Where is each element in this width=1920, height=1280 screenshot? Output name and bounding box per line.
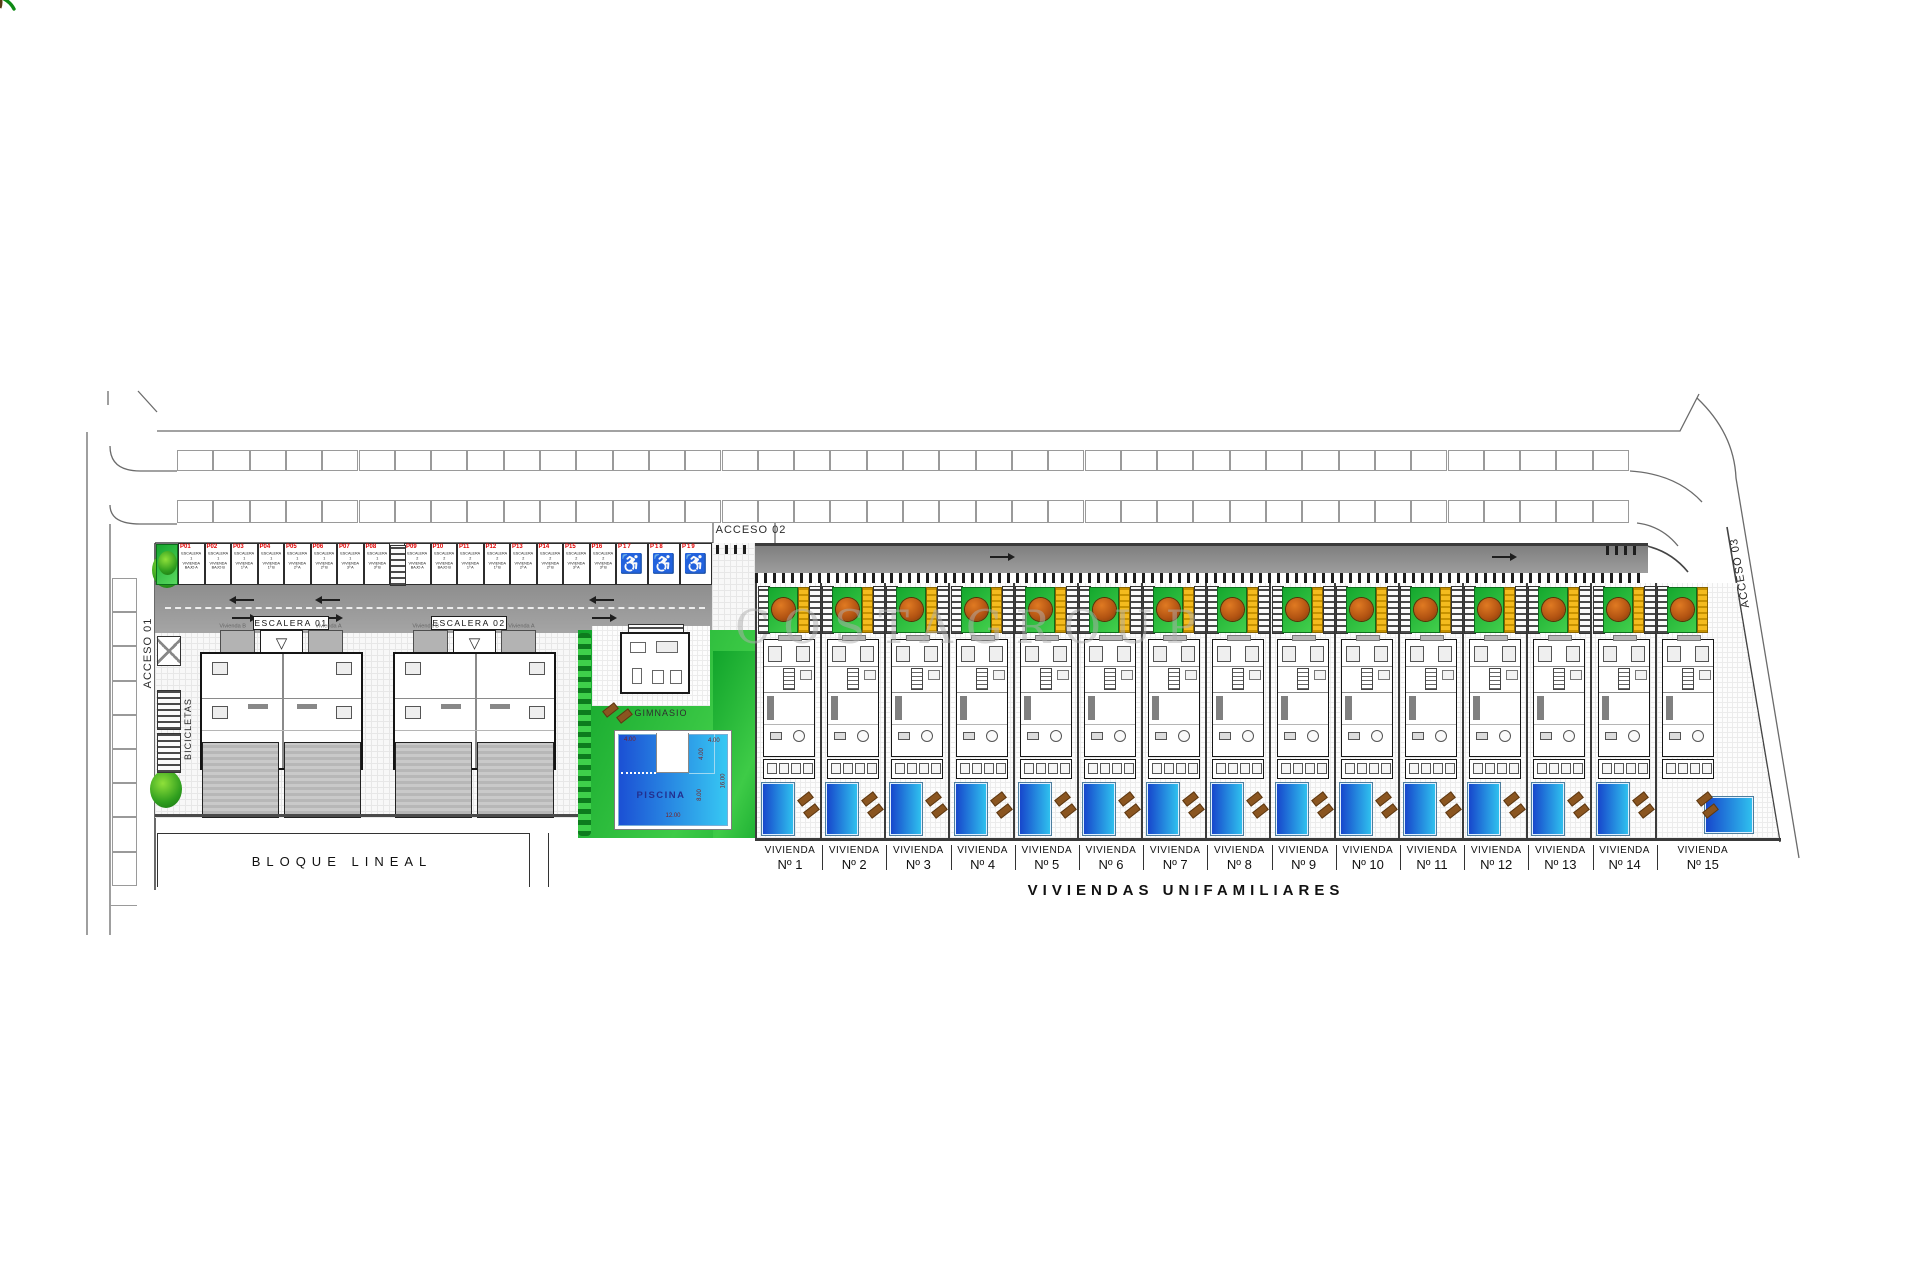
house-label-number: Nº 7 bbox=[1143, 857, 1207, 872]
sun-lounger bbox=[1253, 803, 1270, 819]
bathroom bbox=[1378, 670, 1390, 680]
bathroom bbox=[864, 670, 876, 680]
kitchen-counter bbox=[831, 696, 838, 720]
bed bbox=[212, 706, 228, 719]
parking-space: P02 ESCALERA 1VIVIENDABAJO B ♿ bbox=[205, 543, 232, 585]
stair-icon: ▽ bbox=[276, 635, 288, 652]
parking-space: P17 ♿ bbox=[616, 543, 648, 585]
house-floorplan bbox=[956, 639, 1008, 757]
pergola-strip bbox=[1440, 587, 1451, 633]
dining-table bbox=[1050, 730, 1062, 742]
bathroom bbox=[928, 670, 940, 680]
staircase bbox=[1489, 668, 1501, 690]
houses-south-edge bbox=[755, 838, 1781, 841]
bed bbox=[1374, 646, 1388, 662]
dining-table bbox=[1242, 730, 1254, 742]
sofa bbox=[898, 732, 910, 740]
acceso-01-label: ACCESO 01 bbox=[142, 609, 154, 697]
bloque-lineal-outline2 bbox=[548, 833, 549, 887]
staircase bbox=[1618, 668, 1630, 690]
escalera-02-label: ESCALERA 02 bbox=[431, 616, 507, 630]
traffic-arrow-left bbox=[318, 599, 340, 601]
wheelchair-icon: ♿ bbox=[649, 552, 679, 576]
front-garden bbox=[1667, 587, 1697, 633]
private-pool bbox=[955, 783, 987, 835]
round-tree bbox=[150, 770, 182, 808]
unit-b-label: Vivienda B bbox=[219, 624, 246, 630]
sun-lounger bbox=[1188, 803, 1205, 819]
house-label: VIVIENDA Nº 15 bbox=[1671, 845, 1735, 872]
traffic-arrow-left bbox=[232, 599, 254, 601]
house-label-number: Nº 8 bbox=[1207, 857, 1271, 872]
house-label-number: Nº 2 bbox=[822, 857, 886, 872]
label-divider bbox=[1015, 845, 1016, 870]
front-tree bbox=[1478, 598, 1501, 621]
staircase bbox=[1040, 668, 1052, 690]
crosswalk-acceso3 bbox=[1606, 546, 1636, 555]
house-plot bbox=[1464, 583, 1527, 838]
staircase bbox=[1553, 668, 1565, 690]
private-pool bbox=[1083, 783, 1115, 835]
kitchen-counter bbox=[1473, 696, 1480, 720]
parking-space-id: P11 bbox=[459, 544, 469, 551]
staircase bbox=[1104, 668, 1116, 690]
bed bbox=[336, 662, 352, 675]
palm-tree-icon bbox=[0, 0, 23, 9]
wheelchair-icon: ♿ bbox=[617, 552, 647, 576]
road-centerline bbox=[165, 607, 705, 609]
parking-space: P08 ESCALERA 1VIVIENDA3º B ♿ bbox=[364, 543, 391, 585]
private-pool bbox=[1404, 783, 1436, 835]
parking-space-id: P10 bbox=[433, 544, 444, 551]
bed bbox=[1245, 646, 1259, 662]
front-tree bbox=[1286, 598, 1309, 621]
house-label-word: VIVIENDA bbox=[1528, 845, 1592, 856]
sun-lounger bbox=[1060, 803, 1077, 819]
bike-rack bbox=[157, 733, 181, 773]
house-nameplate bbox=[1227, 635, 1251, 641]
driveway-hatch bbox=[1323, 586, 1335, 634]
bed bbox=[1538, 646, 1552, 662]
house-plot bbox=[1207, 583, 1270, 838]
sun-lounger bbox=[1638, 803, 1655, 819]
house-nameplate bbox=[1420, 635, 1444, 641]
parking-space-assignment: ESCALERA 1VIVIENDA1º B bbox=[259, 552, 282, 571]
parking-space-assignment: ESCALERA 2VIVIENDA2º B bbox=[538, 552, 561, 571]
house-label-number: Nº 10 bbox=[1336, 857, 1400, 872]
staircase bbox=[911, 668, 923, 690]
parking-space: P18 ♿ bbox=[648, 543, 680, 585]
sofa bbox=[963, 732, 975, 740]
house-terrace bbox=[1084, 759, 1136, 779]
parking-space-assignment: ESCALERA 1VIVIENDA2º B bbox=[312, 552, 335, 571]
parking-corner-green bbox=[156, 544, 178, 585]
private-pool bbox=[1340, 783, 1372, 835]
house-terrace bbox=[1662, 759, 1714, 779]
traffic-arrow-right bbox=[990, 556, 1012, 558]
front-garden bbox=[1346, 587, 1376, 633]
kitchen-counter bbox=[895, 696, 902, 720]
house-plot bbox=[1400, 583, 1463, 838]
bed bbox=[1631, 646, 1645, 662]
label-divider bbox=[1272, 845, 1273, 870]
dining-table bbox=[921, 730, 933, 742]
parking-space-id: P12 bbox=[486, 544, 497, 551]
kitchen-counter bbox=[1409, 696, 1416, 720]
parking-space-assignment: ESCALERA 1VIVIENDABAJO A bbox=[180, 552, 203, 571]
parking-space: P15 ESCALERA 2VIVIENDA3º A ♿ bbox=[563, 543, 590, 585]
private-pool bbox=[1019, 783, 1051, 835]
kitchen-counter bbox=[1345, 696, 1352, 720]
dining-table bbox=[986, 730, 998, 742]
staircase bbox=[783, 668, 795, 690]
stair-icon: ▽ bbox=[469, 635, 481, 652]
house-label: VIVIENDA Nº 6 bbox=[1079, 845, 1143, 872]
sofa bbox=[1412, 732, 1424, 740]
front-tree bbox=[1414, 598, 1437, 621]
label-divider bbox=[886, 845, 887, 870]
sun-lounger bbox=[1317, 803, 1334, 819]
unit-a-label: Vivienda A bbox=[315, 624, 341, 630]
house-terrace bbox=[1148, 759, 1200, 779]
house-label-number: Nº 4 bbox=[951, 857, 1015, 872]
parking-space: P04 ESCALERA 1VIVIENDA1º B ♿ bbox=[258, 543, 285, 585]
driveway-hatch bbox=[1579, 586, 1591, 634]
traffic-arrow-right bbox=[232, 617, 254, 619]
sun-lounger bbox=[990, 791, 1007, 807]
sofa bbox=[770, 732, 782, 740]
house-floorplan bbox=[1341, 639, 1393, 757]
label-divider bbox=[951, 845, 952, 870]
dining-table bbox=[793, 730, 805, 742]
parking-space-id: P09 bbox=[406, 544, 417, 551]
private-pool bbox=[1468, 783, 1500, 835]
house-nameplate bbox=[1356, 635, 1380, 641]
parking-space: P09 ESCALERA 2VIVIENDABAJO A ♿ bbox=[404, 543, 431, 585]
front-garden bbox=[1474, 587, 1504, 633]
bathroom bbox=[1570, 670, 1582, 680]
parking-space-assignment: ESCALERA 1VIVIENDABAJO B bbox=[206, 552, 229, 571]
parking-space: P11 ESCALERA 2VIVIENDA1º A ♿ bbox=[457, 543, 484, 585]
driveway-hatch bbox=[1515, 586, 1527, 634]
house-label-word: VIVIENDA bbox=[822, 845, 886, 856]
house-plot bbox=[1528, 583, 1591, 838]
sofa bbox=[1476, 732, 1488, 740]
kitchen-counter bbox=[441, 704, 461, 709]
label-divider bbox=[1528, 845, 1529, 870]
parking-space-assignment: ESCALERA 2VIVIENDA3º A bbox=[565, 552, 588, 571]
kitchen-counter bbox=[490, 704, 510, 709]
bathroom bbox=[1314, 670, 1326, 680]
house-label: VIVIENDA Nº 8 bbox=[1207, 845, 1271, 872]
apartment-building: Vivienda B Vivienda A ▽ bbox=[393, 630, 556, 818]
sun-lounger bbox=[996, 803, 1013, 819]
house-label-number: Nº 13 bbox=[1528, 857, 1592, 872]
parking-space: P05 ESCALERA 1VIVIENDA2º A ♿ bbox=[284, 543, 311, 585]
house-floorplan bbox=[1598, 639, 1650, 757]
kitchen-counter bbox=[1281, 696, 1288, 720]
bed bbox=[1667, 646, 1681, 662]
house-label-word: VIVIENDA bbox=[951, 845, 1015, 856]
parking-space-assignment: ESCALERA 2VIVIENDA1º B bbox=[485, 552, 508, 571]
front-tree bbox=[1350, 598, 1373, 621]
bloque-lineal-label: BLOQUE LINEAL bbox=[192, 854, 492, 869]
house-terrace bbox=[956, 759, 1008, 779]
staircase bbox=[1682, 668, 1694, 690]
parking-space-assignment: ESCALERA 1VIVIENDA1º A bbox=[233, 552, 256, 571]
house-label: VIVIENDA Nº 4 bbox=[951, 845, 1015, 872]
apartment-building: Vivienda B Vivienda A ▽ bbox=[200, 630, 363, 818]
parking-space: P14 ESCALERA 2VIVIENDA2º B ♿ bbox=[537, 543, 564, 585]
house-label: VIVIENDA Nº 7 bbox=[1143, 845, 1207, 872]
house-floorplan bbox=[1662, 639, 1714, 757]
bike-rack bbox=[157, 690, 181, 730]
sun-lounger bbox=[932, 803, 949, 819]
pergola-strip bbox=[1247, 587, 1258, 633]
house-floorplan bbox=[891, 639, 943, 757]
bathroom bbox=[1185, 670, 1197, 680]
bed bbox=[405, 706, 421, 719]
kitchen-counter bbox=[1088, 696, 1095, 720]
bathroom bbox=[993, 670, 1005, 680]
acceso-02-label: ACCESO 02 bbox=[705, 524, 797, 536]
parking-space-assignment: ESCALERA 1VIVIENDA2º A bbox=[286, 552, 309, 571]
bed bbox=[1695, 646, 1709, 662]
private-pool bbox=[1147, 783, 1179, 835]
private-pool bbox=[1211, 783, 1243, 835]
front-garden bbox=[1603, 587, 1633, 633]
parking-stair-strip bbox=[390, 545, 406, 586]
crosswalk-acceso2 bbox=[716, 545, 750, 554]
house-nameplate bbox=[1677, 635, 1701, 641]
label-divider bbox=[1143, 845, 1144, 870]
pool-dim-bottom: 12.00 bbox=[618, 813, 728, 819]
house-floorplan bbox=[1277, 639, 1329, 757]
pool-label: PISCINA bbox=[618, 790, 704, 801]
house-terrace bbox=[1020, 759, 1072, 779]
pergola-strip bbox=[1568, 587, 1579, 633]
sofa bbox=[1669, 732, 1681, 740]
house-terrace bbox=[1212, 759, 1264, 779]
parking-space-id: P06 bbox=[313, 544, 324, 551]
house-label: VIVIENDA Nº 9 bbox=[1272, 845, 1336, 872]
traffic-arrow-right bbox=[592, 617, 614, 619]
street-stall-extra bbox=[110, 905, 137, 906]
driveway-hatch bbox=[1451, 586, 1463, 634]
parking-space: P01 ESCALERA 1VIVIENDABAJO A ♿ bbox=[178, 543, 205, 585]
sun-lounger bbox=[1445, 803, 1462, 819]
house-label-number: Nº 5 bbox=[1015, 857, 1079, 872]
house-label-word: VIVIENDA bbox=[1336, 845, 1400, 856]
staircase bbox=[1361, 668, 1373, 690]
house-terrace bbox=[1533, 759, 1585, 779]
driveway-hatch bbox=[1258, 586, 1270, 634]
driveway-hatch bbox=[1644, 586, 1656, 634]
kitchen-counter bbox=[960, 696, 967, 720]
house-label-number: Nº 12 bbox=[1464, 857, 1528, 872]
pergola-strip bbox=[1633, 587, 1644, 633]
bathroom bbox=[1506, 670, 1518, 680]
house-label-word: VIVIENDA bbox=[1671, 845, 1735, 856]
label-divider bbox=[1657, 845, 1658, 870]
bed bbox=[1217, 646, 1231, 662]
staircase bbox=[1297, 668, 1309, 690]
bed bbox=[1310, 646, 1324, 662]
pool-lane-dots bbox=[621, 772, 656, 774]
site-plan: GIMNASIO 4.00 4.00 4.00 16.00 8.00 12.00… bbox=[0, 0, 1920, 1280]
front-tree bbox=[1607, 598, 1630, 621]
dining-table bbox=[857, 730, 869, 742]
house-label-word: VIVIENDA bbox=[1079, 845, 1143, 856]
parking-space: P12 ESCALERA 2VIVIENDA1º B ♿ bbox=[484, 543, 511, 585]
parking-space-assignment: ESCALERA 2VIVIENDA3º B bbox=[591, 552, 614, 571]
house-terrace bbox=[763, 759, 815, 779]
kitchen-counter bbox=[1024, 696, 1031, 720]
private-pool bbox=[1705, 797, 1753, 833]
house-label-number: Nº 1 bbox=[758, 857, 822, 872]
bed bbox=[529, 662, 545, 675]
kitchen-counter bbox=[297, 704, 317, 709]
house-floorplan bbox=[827, 639, 879, 757]
house-label-word: VIVIENDA bbox=[1143, 845, 1207, 856]
dining-table bbox=[1307, 730, 1319, 742]
parking-space-id: P03 bbox=[233, 544, 244, 551]
apartment-terrace bbox=[284, 742, 361, 818]
apartment-terrace bbox=[395, 742, 472, 818]
pergola-strip bbox=[1504, 587, 1515, 633]
kitchen-counter bbox=[1602, 696, 1609, 720]
unit-b-label: Vivienda B bbox=[412, 624, 439, 630]
house-terrace bbox=[1405, 759, 1457, 779]
bicicletas-label: BICICLETAS bbox=[183, 689, 193, 769]
parking-space-id: P19 bbox=[682, 544, 696, 551]
private-pool bbox=[762, 783, 794, 835]
section-title: VIVIENDAS UNIFAMILIARES bbox=[1006, 882, 1366, 899]
parking-space-id: P17 bbox=[618, 544, 632, 551]
house-label-word: VIVIENDA bbox=[1015, 845, 1079, 856]
house-label-number: Nº 15 bbox=[1671, 857, 1735, 872]
house-terrace bbox=[1341, 759, 1393, 779]
dining-table bbox=[1178, 730, 1190, 742]
house-floorplan bbox=[1212, 639, 1264, 757]
parking-space-id: P15 bbox=[565, 544, 576, 551]
pool-dim-right-upper: 4.00 bbox=[699, 748, 705, 760]
kitchen-counter bbox=[1537, 696, 1544, 720]
house-label-number: Nº 3 bbox=[886, 857, 950, 872]
bed bbox=[1474, 646, 1488, 662]
pool-dim-right-side: 16.00 bbox=[721, 773, 727, 788]
sofa bbox=[1155, 732, 1167, 740]
dining-table bbox=[1435, 730, 1447, 742]
house-label: VIVIENDA Nº 14 bbox=[1593, 845, 1657, 872]
house-label: VIVIENDA Nº 12 bbox=[1464, 845, 1528, 872]
parking-space-id: P01 bbox=[180, 544, 191, 551]
parking-space: P03 ESCALERA 1VIVIENDA1º A ♿ bbox=[231, 543, 258, 585]
house-floorplan bbox=[1084, 639, 1136, 757]
dining-table bbox=[1499, 730, 1511, 742]
staircase bbox=[1425, 668, 1437, 690]
driveway-hatch bbox=[1387, 586, 1399, 634]
staircase bbox=[1168, 668, 1180, 690]
parking-space: P06 ESCALERA 1VIVIENDA2º B ♿ bbox=[311, 543, 338, 585]
bed bbox=[1410, 646, 1424, 662]
parking-space-assignment: ESCALERA 2VIVIENDA2º A bbox=[512, 552, 535, 571]
sofa bbox=[1540, 732, 1552, 740]
parking-space-id: P18 bbox=[650, 544, 664, 551]
house-label: VIVIENDA Nº 10 bbox=[1336, 845, 1400, 872]
sofa bbox=[1284, 732, 1296, 740]
watermark: COSTAGROUP bbox=[735, 600, 1210, 654]
label-divider bbox=[1400, 845, 1401, 870]
parking-space-assignment: ESCALERA 2VIVIENDABAJO A bbox=[406, 552, 429, 571]
parking-space-assignment: ESCALERA 2VIVIENDABAJO B bbox=[432, 552, 455, 571]
bed bbox=[212, 662, 228, 675]
house-plot bbox=[1336, 583, 1399, 838]
front-tree bbox=[1671, 598, 1694, 621]
bathroom bbox=[1442, 670, 1454, 680]
sofa bbox=[1605, 732, 1617, 740]
dining-table bbox=[1692, 730, 1704, 742]
entry-lobby-box bbox=[157, 636, 181, 666]
pergola-strip bbox=[1376, 587, 1387, 633]
house-floorplan bbox=[1469, 639, 1521, 757]
sun-lounger bbox=[803, 803, 820, 819]
front-tree bbox=[1221, 598, 1244, 621]
parking-space-assignment: ESCALERA 1VIVIENDA3º A bbox=[339, 552, 362, 571]
front-garden bbox=[1282, 587, 1312, 633]
private-pool bbox=[1532, 783, 1564, 835]
front-garden bbox=[1410, 587, 1440, 633]
house-floorplan bbox=[1533, 639, 1585, 757]
label-divider bbox=[1593, 845, 1594, 870]
house-terrace bbox=[1277, 759, 1329, 779]
bed bbox=[1346, 646, 1360, 662]
apartment-terrace bbox=[202, 742, 279, 818]
traffic-arrow-left bbox=[592, 599, 614, 601]
house-terrace bbox=[1469, 759, 1521, 779]
staircase bbox=[976, 668, 988, 690]
label-divider bbox=[1336, 845, 1337, 870]
parking-space-id: P16 bbox=[592, 544, 603, 551]
house-nameplate bbox=[1613, 635, 1637, 641]
front-tree bbox=[1542, 598, 1565, 621]
house-label-number: Nº 9 bbox=[1272, 857, 1336, 872]
house-terrace bbox=[827, 759, 879, 779]
bed bbox=[1282, 646, 1296, 662]
house-label-word: VIVIENDA bbox=[886, 845, 950, 856]
label-divider bbox=[1464, 845, 1465, 870]
house-terrace bbox=[891, 759, 943, 779]
parking-space: P07 ESCALERA 1VIVIENDA3º A ♿ bbox=[337, 543, 364, 585]
house-label-word: VIVIENDA bbox=[758, 845, 822, 856]
parking-space-id: P07 bbox=[339, 544, 350, 551]
front-garden bbox=[1538, 587, 1568, 633]
garden-hedge bbox=[578, 633, 591, 836]
sun-lounger bbox=[1632, 791, 1649, 807]
house-nameplate bbox=[1548, 635, 1572, 641]
parking-space-id: P13 bbox=[512, 544, 523, 551]
house-terrace bbox=[1598, 759, 1650, 779]
parking-space-id: P14 bbox=[539, 544, 550, 551]
private-pool bbox=[1276, 783, 1308, 835]
pergola-strip bbox=[1697, 587, 1708, 633]
house-floorplan bbox=[1148, 639, 1200, 757]
parking-space-assignment: ESCALERA 2VIVIENDA1º A bbox=[459, 552, 482, 571]
house-nameplate bbox=[1484, 635, 1508, 641]
bed bbox=[405, 662, 421, 675]
kitchen-counter bbox=[767, 696, 774, 720]
kitchen-counter bbox=[1152, 696, 1159, 720]
